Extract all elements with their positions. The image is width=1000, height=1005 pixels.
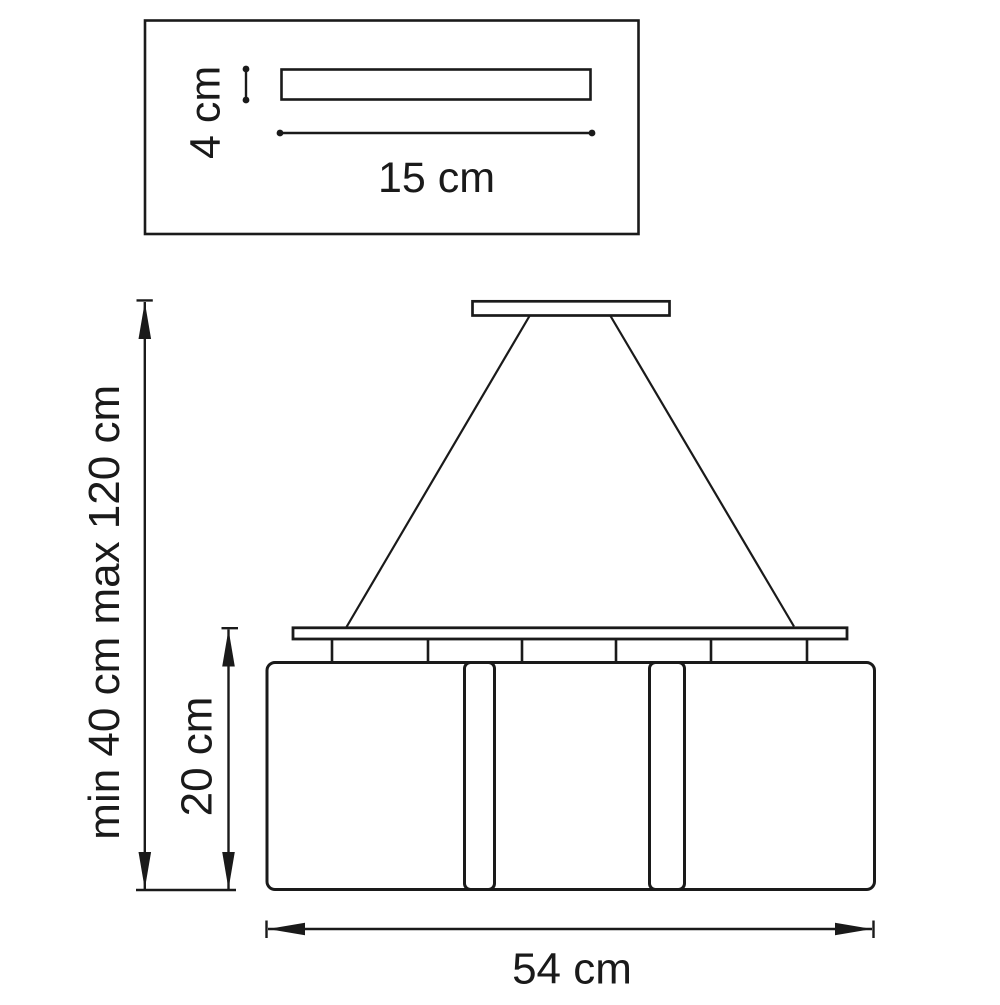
svg-text:min 40 cm max 120 cm: min 40 cm max 120 cm bbox=[80, 385, 129, 840]
svg-text:15 cm: 15 cm bbox=[378, 154, 495, 202]
svg-text:54 cm: 54 cm bbox=[512, 945, 632, 994]
svg-text:20 cm: 20 cm bbox=[173, 697, 222, 817]
svg-text:4 cm: 4 cm bbox=[182, 66, 230, 159]
